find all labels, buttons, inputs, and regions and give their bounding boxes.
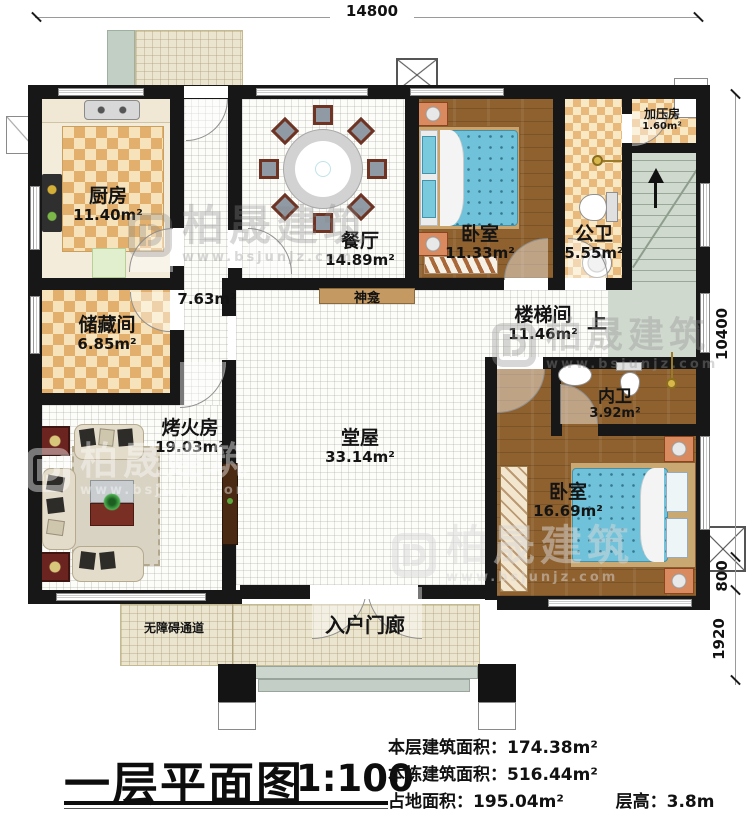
room-area: 16.69m²	[533, 503, 603, 520]
bed1-sheet	[440, 130, 464, 226]
wall	[28, 393, 184, 405]
room-label-pressure-room: 加压房 1.60m²	[630, 108, 694, 133]
window	[256, 88, 368, 96]
window	[700, 293, 710, 353]
room-area: 5.55m²	[564, 245, 623, 262]
dining-chair	[367, 159, 387, 179]
bed1-cushion	[422, 180, 436, 218]
wall	[240, 585, 312, 599]
porch-label: 入户门廊	[300, 614, 430, 636]
window	[30, 296, 40, 354]
toilet-bowl	[579, 194, 607, 221]
sofa-cushion	[46, 497, 65, 514]
room-label-bedroom1: 卧室 11.33m²	[430, 224, 530, 262]
stat-footprint: 占地面积：195.04m² 层高：3.8m	[388, 787, 714, 812]
room-label-hallway: 7.63m²	[176, 291, 238, 308]
dining-table-center	[315, 161, 331, 177]
wall	[551, 424, 562, 436]
room-label-bedroom2: 卧室 16.69m²	[518, 482, 618, 520]
room-name: 内卫	[598, 388, 632, 407]
shower-icon	[592, 155, 603, 166]
window	[410, 88, 504, 96]
sink-icon	[558, 364, 592, 386]
room-area: 7.63m²	[177, 291, 236, 308]
porch-step	[258, 679, 470, 692]
room-name: 餐厅	[341, 231, 379, 252]
kitchen-board	[92, 248, 126, 278]
porch-column-base	[218, 702, 256, 730]
room-area: 11.46m²	[508, 326, 578, 343]
room-name: 卧室	[461, 224, 499, 245]
room-name: 公卫	[575, 224, 613, 245]
room-label-dining: 餐厅 14.89m²	[310, 231, 410, 269]
toilet-tank	[606, 192, 618, 222]
stat-value: 516.44m²	[507, 765, 598, 785]
stairs-up-arrow-head	[648, 168, 664, 183]
dining-chair	[313, 105, 333, 125]
room-name: 加压房	[644, 108, 680, 121]
window	[58, 88, 144, 96]
stat-floor-area: 本层建筑面积：174.38m²	[388, 733, 598, 758]
wall	[606, 278, 632, 290]
window	[548, 599, 692, 607]
dimension-top-value: 14800	[330, 2, 414, 20]
patio-green-strip	[107, 30, 135, 88]
sofa-cushion	[46, 475, 65, 493]
end-table	[40, 552, 70, 582]
sofa-cushion	[46, 519, 65, 536]
wall	[228, 268, 242, 278]
tv-cabinet	[222, 463, 238, 545]
wall	[228, 85, 242, 230]
shrine-shelf: 神龛	[319, 288, 415, 304]
room-label-fire-room: 烤火房 19.03m²	[140, 418, 240, 456]
shower-hose	[603, 160, 623, 162]
bed2-pillow	[666, 518, 688, 558]
room-area: 11.33m²	[445, 245, 515, 262]
stat-label: 占地面积：	[388, 792, 473, 812]
dimension-right-main: 10400	[713, 304, 731, 364]
wall	[405, 278, 504, 290]
window	[700, 183, 710, 247]
room-area: 19.03m²	[155, 439, 225, 456]
sofa-cushion	[79, 551, 96, 570]
nightstand	[664, 436, 694, 462]
wall	[222, 545, 236, 604]
bed2-pillow	[666, 472, 688, 512]
stairs-up-arrow-shaft	[654, 182, 657, 208]
room-name: 储藏间	[78, 315, 135, 336]
toilet-tank	[616, 362, 642, 371]
room-area: 3.92m²	[589, 407, 640, 422]
stat-value: 195.04m²	[473, 792, 564, 812]
room-area: 1.60m²	[642, 121, 681, 132]
sofa-cushion	[117, 428, 133, 446]
dining-chair	[259, 159, 279, 179]
dimension-line-right	[735, 95, 736, 685]
room-area: 33.14m²	[325, 449, 395, 466]
shower-hose	[671, 352, 673, 380]
shower-icon	[666, 378, 677, 389]
room-label-kitchen: 厨房 11.40m²	[58, 186, 158, 224]
room-name: 楼梯间	[514, 305, 571, 326]
room-name: 堂屋	[341, 428, 379, 449]
stairs-up-label: 上	[583, 310, 611, 332]
nightstand	[664, 568, 694, 594]
porch-column-base	[478, 702, 516, 730]
entrance-threshold	[310, 585, 418, 599]
title-underline	[64, 801, 388, 805]
room-area: 14.89m²	[325, 252, 395, 269]
stat-label: 本栋建筑面积：	[388, 765, 507, 785]
stat-value: 3.8m	[667, 792, 715, 812]
room-area: 6.85m²	[77, 336, 136, 353]
window	[56, 593, 206, 601]
wall	[170, 85, 184, 228]
wall	[485, 357, 497, 600]
ramp-porch-divider	[232, 604, 233, 666]
dimension-right-porch: 800	[713, 557, 731, 595]
wall	[28, 278, 184, 290]
kitchen-sink	[84, 100, 140, 120]
room-name: 卧室	[549, 482, 587, 503]
dining-chair	[313, 213, 333, 233]
bed2-sheet	[640, 468, 664, 562]
dimension-right-steps: 1920	[710, 616, 728, 662]
room-label-main-hall: 堂屋 33.14m²	[310, 428, 410, 466]
title-underline-thin	[64, 808, 388, 809]
back-door-opening	[184, 86, 228, 98]
stat-building-area: 本栋建筑面积：516.44m²	[388, 760, 598, 785]
stair-landing-floor	[608, 288, 696, 357]
tv-plant-dot	[227, 498, 233, 504]
plant-icon	[103, 493, 121, 511]
room-area: 11.40m²	[73, 207, 143, 224]
room-label-private-bath: 内卫 3.92m²	[583, 388, 647, 422]
end-table	[40, 426, 70, 456]
patio-deck	[135, 30, 243, 88]
sofa-cushion	[98, 428, 115, 446]
wall	[548, 278, 565, 290]
porch-step	[250, 666, 478, 679]
window	[700, 436, 710, 530]
wall	[598, 424, 696, 436]
bed1-cushion	[422, 136, 436, 174]
ramp-label: 无障碍通道	[118, 622, 230, 635]
porch-column	[478, 664, 516, 702]
stat-value: 174.38m²	[507, 738, 598, 758]
room-label-storage: 储藏间 6.85m²	[52, 315, 162, 353]
stat-label: 层高：	[616, 792, 667, 812]
stat-label: 本层建筑面积：	[388, 738, 507, 758]
room-label-stair-hall: 楼梯间 11.46m²	[488, 305, 598, 343]
sofa-cushion	[79, 428, 96, 447]
porch-column	[218, 664, 256, 702]
sofa-cushion	[99, 551, 116, 569]
room-label-public-bath: 公卫 5.55m²	[554, 224, 634, 262]
nightstand	[418, 102, 448, 126]
room-name: 烤火房	[161, 418, 218, 439]
room-name: 厨房	[89, 186, 127, 207]
window	[30, 186, 40, 250]
floor-plan-canvas: 14800 10400 800 1920	[0, 0, 750, 813]
